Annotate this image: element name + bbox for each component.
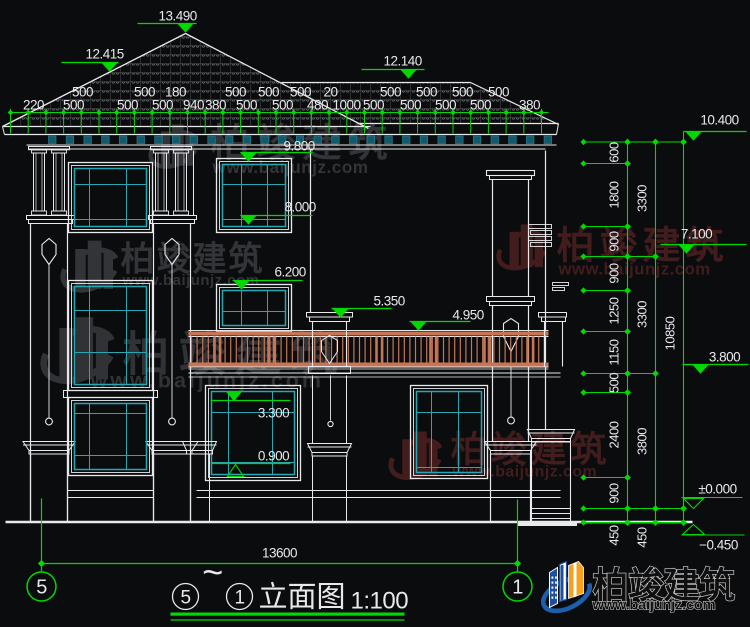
svg-text:500: 500: [488, 85, 509, 100]
svg-text:立面图: 立面图: [259, 581, 346, 614]
svg-text:0.900: 0.900: [258, 449, 289, 464]
svg-text:450: 450: [607, 525, 622, 545]
svg-text:±0.000: ±0.000: [698, 482, 736, 497]
svg-text:5.350: 5.350: [374, 294, 405, 309]
svg-text:4.950: 4.950: [453, 308, 484, 323]
svg-text:−0.450: −0.450: [699, 538, 738, 553]
svg-text:13.490: 13.490: [159, 9, 197, 24]
svg-text:500: 500: [435, 98, 456, 113]
svg-text:500: 500: [400, 98, 421, 113]
svg-text:1250: 1250: [607, 297, 622, 324]
svg-text:1: 1: [234, 588, 244, 609]
svg-text:1800: 1800: [607, 181, 622, 208]
svg-text:3.800: 3.800: [709, 350, 740, 365]
svg-text:6.200: 6.200: [275, 265, 306, 280]
svg-text:600: 600: [607, 142, 622, 162]
svg-text:900: 900: [607, 263, 622, 283]
svg-text:9.800: 9.800: [284, 139, 315, 154]
svg-text:500: 500: [363, 98, 384, 113]
svg-text:500: 500: [272, 98, 293, 113]
svg-text:7.100: 7.100: [681, 227, 712, 242]
svg-text:500: 500: [152, 98, 173, 113]
svg-text:5: 5: [36, 577, 47, 599]
svg-text:940: 940: [183, 98, 204, 113]
svg-text:220: 220: [23, 98, 44, 113]
svg-text:2400: 2400: [607, 421, 622, 448]
svg-text:500: 500: [470, 98, 491, 113]
svg-text:10850: 10850: [663, 316, 678, 350]
svg-text:3300: 3300: [635, 185, 650, 212]
svg-text:3300: 3300: [635, 301, 650, 328]
svg-text:480: 480: [307, 98, 328, 113]
svg-text:12.415: 12.415: [86, 47, 124, 62]
svg-text:12.140: 12.140: [384, 54, 422, 69]
svg-text:10.400: 10.400: [700, 113, 738, 128]
svg-text:www.baijunjz.com: www.baijunjz.com: [212, 157, 369, 177]
svg-text:500: 500: [117, 98, 138, 113]
svg-text:450: 450: [635, 527, 650, 547]
svg-text:1:100: 1:100: [351, 588, 409, 615]
svg-text:13600: 13600: [262, 546, 297, 561]
svg-text:www.baijunjz.com: www.baijunjz.com: [558, 259, 711, 278]
svg-text:5: 5: [180, 588, 190, 609]
svg-text:500: 500: [236, 98, 257, 113]
svg-text:8.000: 8.000: [285, 200, 316, 215]
svg-text:1: 1: [512, 577, 523, 599]
svg-text:380: 380: [205, 98, 226, 113]
svg-text:500: 500: [63, 98, 84, 113]
svg-text:380: 380: [519, 98, 540, 113]
svg-text:~: ~: [202, 552, 223, 593]
svg-text:1150: 1150: [607, 339, 622, 365]
svg-text:900: 900: [607, 483, 622, 503]
svg-text:500: 500: [607, 373, 622, 393]
svg-text:900: 900: [607, 231, 622, 251]
svg-text:www.baijunjz.com: www.baijunjz.com: [592, 598, 716, 614]
svg-text:3.300: 3.300: [258, 406, 289, 421]
svg-text:3800: 3800: [635, 428, 650, 455]
svg-text:1000: 1000: [332, 98, 360, 113]
